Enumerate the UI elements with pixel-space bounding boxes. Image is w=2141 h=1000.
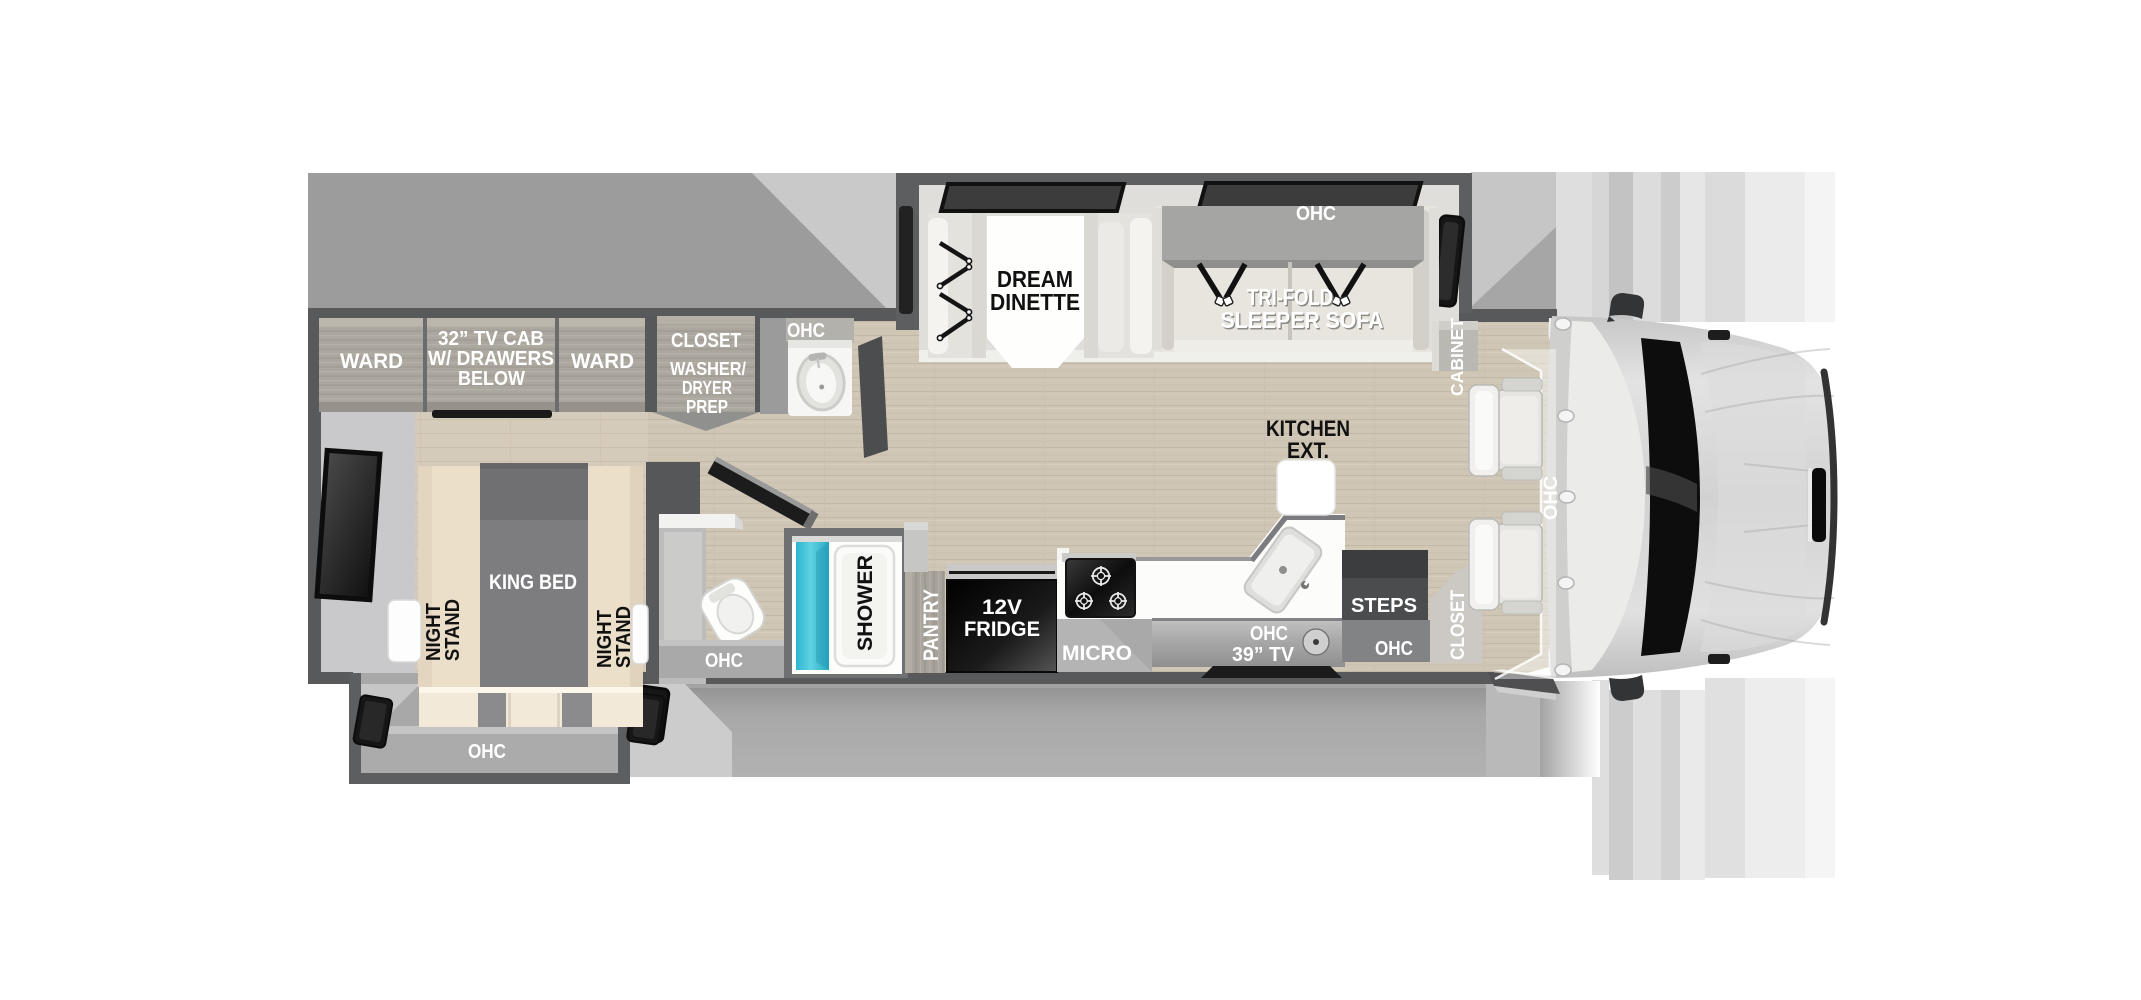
svg-text:WARD: WARD	[340, 350, 403, 373]
svg-text:12V: 12V	[982, 596, 1022, 619]
svg-text:OHC: OHC	[1250, 623, 1288, 645]
svg-text:32” TV CAB: 32” TV CAB	[438, 328, 544, 350]
svg-text:CABINET: CABINET	[1447, 318, 1467, 396]
svg-text:STEPS: STEPS	[1351, 595, 1417, 617]
svg-text:W/ DRAWERS: W/ DRAWERS	[428, 348, 554, 370]
svg-text:SLEEPER SOFA: SLEEPER SOFA	[1221, 307, 1384, 333]
svg-text:CLOSET: CLOSET	[671, 330, 741, 352]
svg-text:SHOWER: SHOWER	[854, 555, 877, 651]
svg-text:WASHER/: WASHER/	[670, 359, 746, 379]
svg-text:FRIDGE: FRIDGE	[964, 618, 1040, 641]
svg-text:EXT.: EXT.	[1287, 438, 1329, 463]
svg-text:STAND: STAND	[442, 599, 464, 661]
svg-text:OHC: OHC	[1541, 476, 1562, 520]
svg-text:PANTRY: PANTRY	[919, 589, 943, 661]
svg-text:CLOSET: CLOSET	[1448, 590, 1469, 660]
svg-text:OHC: OHC	[705, 650, 743, 672]
svg-text:OHC: OHC	[468, 741, 506, 763]
svg-text:DRYER: DRYER	[682, 378, 732, 398]
svg-text:STAND: STAND	[613, 606, 635, 668]
svg-text:KING BED: KING BED	[489, 571, 577, 594]
svg-text:PREP: PREP	[686, 397, 728, 417]
svg-text:BELOW: BELOW	[458, 368, 525, 390]
svg-text:WARD: WARD	[571, 350, 634, 373]
svg-text:OHC: OHC	[787, 320, 825, 342]
svg-text:DINETTE: DINETTE	[990, 289, 1080, 315]
svg-text:OHC: OHC	[1296, 203, 1336, 225]
svg-text:MICRO: MICRO	[1062, 642, 1132, 665]
svg-text:39” TV: 39” TV	[1232, 644, 1295, 666]
svg-text:OHC: OHC	[1375, 638, 1413, 660]
